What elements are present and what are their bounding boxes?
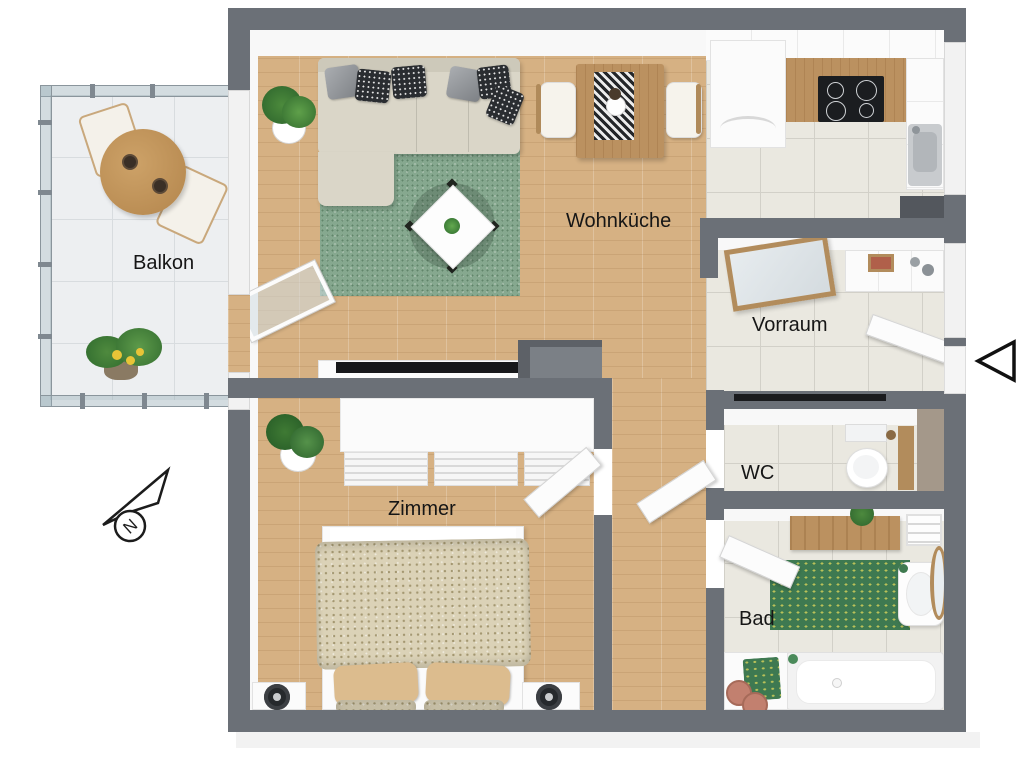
wall-top [228,8,966,30]
wall-inner-face [250,30,706,56]
wc-shaft [917,409,944,491]
balcony-glass-railing-left [40,85,52,407]
wall-left-lower [228,410,250,732]
sideboard-vase [922,264,934,276]
gray-console-top [530,347,602,378]
coffee-table-plant [444,218,460,234]
tv-flatscreen [336,362,528,373]
coffee-cup [122,154,138,170]
wall-bottom [228,710,966,732]
dining-chair-back [696,84,701,134]
table-vase-flowers [609,88,621,100]
entrance-arrow-icon [970,336,1016,386]
sofa-chaise [318,152,394,206]
bath-shelf [790,516,900,550]
kitchen-window [944,42,966,195]
wall-inner-face [250,398,258,710]
wardrobe-louvered-door [434,452,518,486]
railing-post [38,120,52,125]
wall-corridor-bad [706,588,724,710]
wc-wood-cabinet [898,426,914,490]
wall-left-balcony-face [228,90,250,295]
wardrobe [340,398,594,452]
wall-left-upper [228,8,250,92]
corridor-floor [612,378,706,710]
coffee-cup [152,178,168,194]
entrance-opening [944,346,966,394]
wall-vorraum-stub [700,238,718,278]
room-label-bad: Bad [739,608,775,631]
balcony-door-threshold [228,295,250,372]
bed-duvet [315,538,531,670]
balcony-table [100,129,186,215]
railing-post [204,393,209,409]
wall-right [944,394,966,732]
railing-post [38,190,52,195]
wc-brush [886,430,896,440]
building-skirt [236,732,980,748]
railing-post [90,84,95,98]
wall-bedroom-corridor [594,378,612,449]
wall-bedroom-corridor [594,515,612,710]
wc-transom-strip [734,394,886,401]
sofa-pillow [354,68,391,103]
dining-chair-back [536,84,541,134]
toilet-cistern [845,424,887,442]
vorraum-window [944,243,966,338]
cooktop-burner [827,82,844,99]
bedroom-plant [290,426,324,458]
balcony-plant-flowers [136,348,144,356]
railing-post [142,393,147,409]
wall-right [944,338,966,346]
wall-kitchen-vorraum [700,218,966,238]
room-label-wc: WC [741,462,774,485]
toilet-seat [853,455,879,479]
bathtub-basin [796,660,936,704]
sofa-pillow [391,65,428,100]
balcony-glass-railing-top [40,85,230,97]
bathtub-drain [832,678,842,688]
dining-chair [540,82,576,138]
wall-inner-face [724,409,917,425]
balcony-plant-flowers [112,350,122,360]
compass-north-icon: N [92,460,182,550]
bedside-lamp-center [273,693,281,701]
cooktop-burner [859,103,874,118]
railing-post [80,393,85,409]
kitchen-sink-bowl [913,132,937,172]
towel-rack [906,514,942,546]
bathtub-deco-green [788,654,798,664]
sideboard-vase [910,257,920,267]
wall-wc-bad [706,491,944,509]
kitchen-faucet [912,126,920,134]
room-label-wohnkueche: Wohnküche [566,210,671,233]
railing-post [38,262,52,267]
railing-post [38,334,52,339]
wardrobe-louvered-door [344,452,428,486]
room-label-balkon: Balkon [133,252,194,275]
fridge-drawer-handle [720,116,776,141]
bathroom-sink-cup [899,564,908,573]
room-label-vorraum: Vorraum [752,314,828,337]
room-label-zimmer: Zimmer [388,498,456,521]
balcony-plant [116,328,162,366]
balcony-plant-flowers [126,356,135,365]
wall-right [944,8,966,42]
kitchen-dark-shaft [900,196,944,218]
floor-plan-canvas: Balkon Wohnküch [0,0,1018,757]
sideboard-picture-frame [868,254,894,272]
bedside-lamp-center [545,693,553,701]
living-plant [282,96,316,128]
railing-post [150,84,155,98]
cooktop-burner [856,80,877,101]
cooktop-burner [826,101,846,121]
wall-living-bedroom [228,378,612,398]
